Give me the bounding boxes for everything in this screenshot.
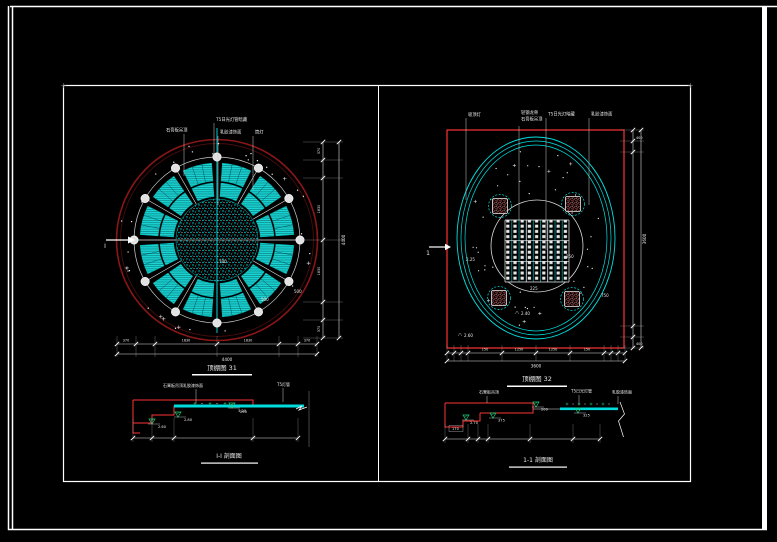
right-plan-caption: 顶棚图 32	[507, 374, 567, 387]
label-left-dims-total_bottom: 4400	[222, 357, 233, 362]
label-left-radius_labels-b: 500	[261, 297, 269, 302]
right-section-marks: 2.70375200325170	[449, 402, 590, 432]
label-right-inner_labels-a: 2.25	[466, 257, 475, 262]
left-section-profile	[133, 391, 309, 447]
label-right-section-leader3: 乳胶漆饰面	[612, 389, 632, 395]
right-section-leaders: 石膏板吊顶T5日光灯管乳胶漆饰面	[479, 388, 632, 406]
label-right-section-elev: 2.70	[470, 421, 479, 425]
label-left-leaders-mid: 乳胶漆饰面	[220, 129, 242, 136]
right-section: 2.70375200325170 石膏板吊顶T5日光灯管乳胶漆饰面 1-1 剖面…	[443, 388, 632, 468]
label-right-inner_labels-b: 250	[566, 254, 574, 259]
label-left-dims-r3: 1830	[317, 267, 321, 276]
label-right-section-leader2: T5日光灯管	[570, 388, 592, 394]
label-right-section-d1: 200	[541, 408, 549, 412]
label-left-dims-total_right: 4400	[341, 234, 346, 245]
label-right-dims-b4: 150	[584, 348, 590, 352]
label-left-section-elev2: 2.80	[184, 418, 193, 422]
label-right-caption: 顶棚图 32	[522, 374, 552, 383]
label-right-leaders-l2a: 轻钢龙骨	[521, 109, 538, 116]
label-left-leaders-top: T5日光灯管暗藏	[215, 116, 248, 123]
left-section-dimensions	[131, 418, 300, 442]
label-left-section-leader_right: T5灯管	[276, 381, 290, 387]
label-right-dims-b1: 150	[482, 348, 488, 352]
label-left-leaders-right: 筒灯	[255, 129, 264, 136]
right-section-dimensions	[443, 424, 602, 443]
label-left-dims-r2: 1830	[317, 205, 321, 214]
label-right-dims-total_right: 3600	[642, 233, 647, 244]
label-right-leaders-l4: 乳胶漆饰面	[591, 111, 613, 118]
label-right-cut_label: 1	[426, 250, 430, 257]
left-plan: 700500500 370183018303704400370183018303…	[104, 116, 346, 376]
label-left-leaders-left: 石膏板吊顶	[166, 127, 188, 134]
label-right-section-d2: 375	[498, 419, 505, 423]
label-right-section_caption: 1-1 剖面图	[523, 456, 553, 464]
label-left-section-leader_left: 石膏板吊顶乳胶漆饰面	[163, 382, 203, 388]
label-right-dims-total_bottom: 3600	[531, 364, 542, 369]
label-right-inner_labels-c: 225	[530, 286, 538, 291]
left-section-caption: I-I 剖面图	[201, 452, 258, 464]
label-left-section-dim1: 250	[240, 410, 248, 414]
label-right-dims-b3: 1250	[549, 348, 558, 352]
label-left-dims-b2: 1830	[182, 339, 191, 343]
label-right-inner_labels-e: 2.60	[464, 333, 473, 338]
label-left-dims-b4: 370	[304, 339, 310, 343]
sheet-border	[8, 6, 777, 530]
right-plan: 1501250125015036004004003600 吸顶灯轻钢龙骨石膏板吊…	[426, 109, 647, 387]
label-left-dims-b1: 370	[123, 339, 129, 343]
label-right-leaders-l2b: 石膏板吊顶	[521, 116, 543, 123]
label-left-dims-b3: 1830	[244, 339, 253, 343]
right-plan-grid	[505, 220, 569, 282]
label-right-dims-rb: 400	[636, 342, 642, 346]
label-left-caption: 顶棚图 31	[207, 363, 237, 372]
cad-canvas: 700500500 370183018303704400370183018303…	[0, 0, 777, 542]
label-right-leaders-l1: 吸顶灯	[468, 111, 482, 118]
right-section-profile	[445, 402, 625, 437]
label-right-section-leader1: 石膏板吊顶	[479, 389, 499, 395]
label-right-inner_labels-d: 2.40	[521, 311, 530, 316]
label-right-dims-b2: 1250	[515, 348, 524, 352]
left-plan-caption: 顶棚图 31	[192, 363, 252, 376]
right-section-caption: 1-1 剖面图	[509, 456, 567, 468]
label-right-section-d4: 170	[452, 427, 460, 431]
label-left-dims-r1: 370	[317, 148, 321, 154]
label-right-leaders-l3: T5日光灯暗藏	[547, 111, 576, 118]
left-section: 2.602.803.20250 石膏板吊顶乳胶漆饰面T5灯管 I-I 剖面图	[131, 381, 309, 464]
label-left-radius_labels-c: 500	[294, 289, 302, 294]
label-right-inner_labels-f: 750	[601, 293, 609, 298]
label-left-dims-r4: 370	[317, 326, 321, 332]
label-right-section-d3: 325	[583, 414, 590, 418]
label-left-section_caption: I-I 剖面图	[216, 452, 242, 460]
label-left-cut_label: I	[104, 243, 106, 250]
label-left-radius_labels-a: 700	[219, 259, 227, 264]
label-right-dims-rt: 400	[636, 136, 642, 140]
left-plan-cut-marker: I	[104, 237, 135, 251]
label-left-section-elev1: 2.60	[158, 425, 167, 429]
